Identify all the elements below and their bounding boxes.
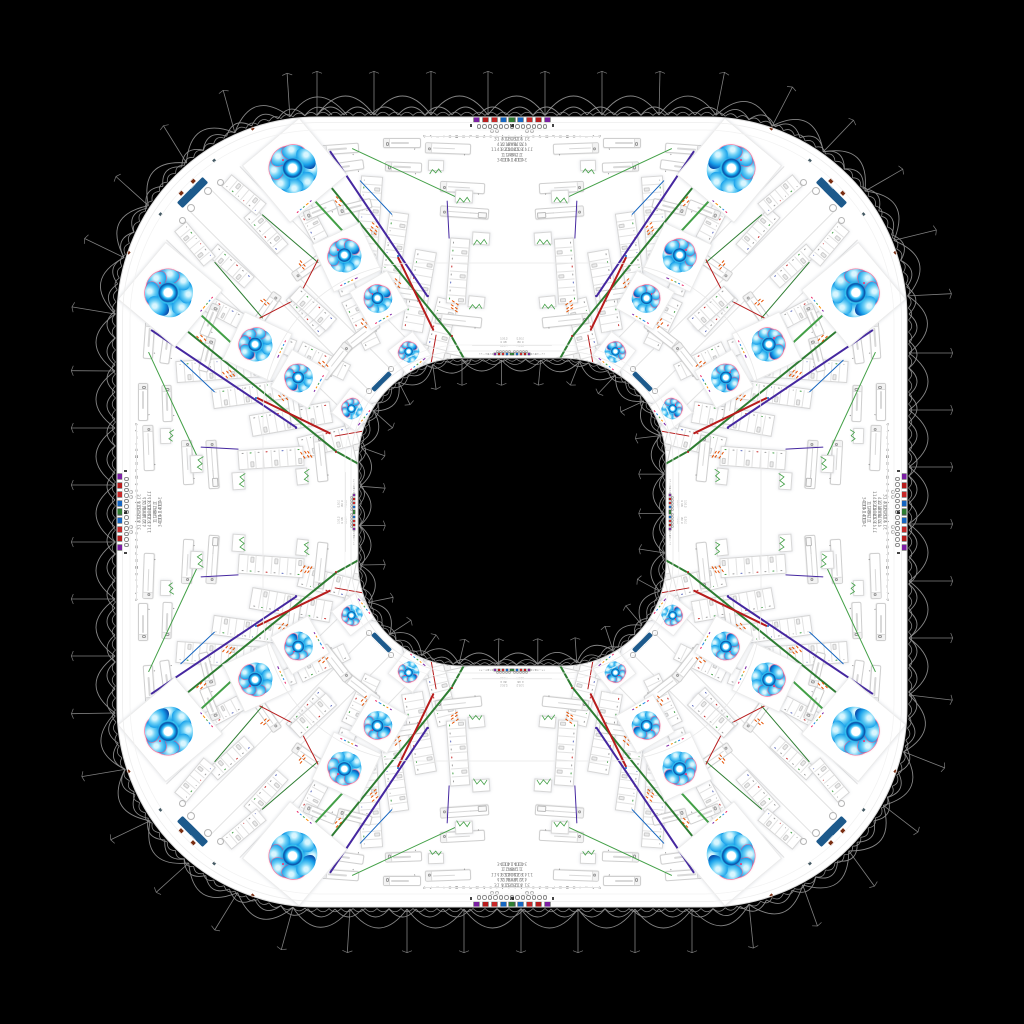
micro-text-span: ▾ — [694, 548, 697, 550]
row-status-dot-icon — [703, 716, 705, 718]
row-action-chip[interactable] — [770, 557, 774, 563]
micro-text-span: 4 1321 4 1748 8 11041 1 148 110 141 — [862, 497, 888, 523]
tick-mark — [654, 612, 656, 614]
row-status-dot-icon — [697, 667, 699, 669]
inner-pagination-dot — [671, 525, 674, 528]
ghost-circle — [652, 630, 657, 635]
micro-text: 4 1321 4 1748 8 11041 1 148 110 141 — [830, 466, 888, 524]
dot-row-center-icon — [897, 513, 900, 515]
app-icon[interactable] — [903, 537, 908, 542]
rim-mark-icon — [894, 770, 898, 774]
input-leading-icon — [877, 634, 885, 640]
row-status-dot-icon — [827, 785, 829, 787]
row-status-dot-icon — [778, 635, 780, 637]
input-text-value-2 — [810, 545, 812, 554]
micro-text-span: ▾ — [873, 609, 876, 610]
row-status-dot-icon — [774, 747, 776, 749]
row-status-dot-icon — [725, 574, 727, 576]
row-status-dot-icon — [806, 662, 808, 664]
input-text-value — [702, 558, 706, 581]
input-text-value — [810, 552, 813, 576]
ghost-circle — [829, 812, 837, 820]
tick-mark — [738, 682, 740, 684]
micro-text-span: ▾ — [849, 608, 852, 610]
micro-text-span: ↻✎▭⊞▦⇄▤≡ — [669, 528, 671, 545]
row-status-dot-icon — [843, 659, 845, 661]
inner-pagination-dot — [671, 519, 674, 522]
micro-text-span: ▾ — [851, 665, 854, 667]
micro-text-span: ▾ — [868, 670, 871, 672]
input-text-value — [874, 569, 876, 591]
row-status-dot-icon — [757, 572, 759, 574]
rim-mark-icon — [840, 828, 846, 834]
app-icon[interactable] — [903, 546, 908, 551]
magenta-speck — [675, 618, 677, 620]
tick-mark — [742, 675, 744, 677]
row-action-chip[interactable] — [796, 619, 801, 625]
pagination-dot[interactable] — [895, 532, 900, 537]
input-trailing-button[interactable] — [806, 537, 813, 546]
row-status-dot-icon — [711, 674, 713, 676]
sparkline-chart — [848, 581, 857, 595]
row-status-dot-icon — [756, 638, 758, 640]
micro-text-span: 31 312 412 4 1141 21 1 2 341 1 — [862, 514, 888, 554]
dot-row-end-icon — [898, 552, 901, 555]
sparkline-box — [821, 551, 835, 570]
tick-mark — [662, 602, 664, 604]
row-action-chip[interactable] — [832, 644, 836, 650]
row-status-dot-icon — [822, 779, 824, 781]
magnifier-icon — [746, 723, 751, 728]
list-panel — [687, 692, 736, 738]
micro-text-span: ▾ — [867, 559, 870, 561]
row-status-dot-icon — [790, 712, 792, 714]
tick-mark — [817, 719, 819, 721]
inner-pagination-dot — [671, 516, 674, 519]
tick-mark — [700, 646, 702, 648]
rim-mark-icon — [862, 808, 866, 812]
row-status-dot-icon — [717, 677, 719, 679]
input-leading-icon — [872, 592, 881, 598]
row-status-dot-icon — [836, 660, 838, 662]
connector-line — [887, 512, 888, 600]
magnifier-icon — [873, 593, 877, 597]
search-input[interactable]: ▾ — [869, 553, 882, 599]
row-action-chip[interactable] — [746, 559, 750, 565]
magnifier-icon — [834, 578, 838, 582]
row-status-dot-icon — [677, 657, 679, 659]
row-status-dot-icon — [800, 632, 802, 634]
input-text-value — [880, 615, 882, 633]
row-action-chip[interactable] — [683, 577, 688, 583]
center-hole — [358, 358, 666, 666]
row-action-chip[interactable] — [722, 560, 726, 566]
dropdown-caret-icon: ▾ — [685, 544, 704, 551]
primary-button-label: EXPORT — [823, 833, 835, 839]
sparkline-chart — [775, 535, 787, 552]
magenta-speck — [773, 685, 775, 687]
micro-text-span: ▾ — [828, 545, 831, 547]
input-leading-icon — [808, 577, 817, 584]
magnifier-icon — [806, 713, 811, 718]
row-status-dot-icon — [741, 573, 743, 575]
input-leading-icon — [743, 722, 754, 732]
tick-mark — [708, 632, 710, 634]
row-status-dot-icon — [704, 670, 706, 672]
row-status-dot-icon — [836, 796, 838, 798]
tick-mark — [743, 671, 745, 673]
row-status-dot-icon — [706, 617, 708, 619]
tick-mark — [822, 713, 824, 715]
input-text-value — [873, 677, 876, 696]
row-status-dot-icon — [813, 768, 815, 770]
ghost-circle — [839, 801, 846, 808]
magnifier-icon — [878, 635, 882, 639]
tick-mark — [702, 643, 704, 645]
row-status-dot-icon — [715, 726, 717, 728]
pagination-dot[interactable] — [895, 526, 900, 531]
row-status-dot-icon — [792, 633, 794, 635]
tick-mark — [664, 599, 666, 601]
row-status-dot-icon — [721, 732, 723, 734]
row-status-dot-icon — [798, 768, 800, 770]
sparkline-chart — [711, 540, 723, 556]
row-status-dot-icon — [697, 710, 699, 712]
row-status-dot-icon — [731, 681, 733, 683]
inner-pagination-dot — [671, 522, 674, 525]
connector-line — [679, 512, 680, 552]
row-status-dot-icon — [689, 592, 691, 594]
app-icon[interactable] — [903, 528, 908, 533]
row-status-dot-icon — [761, 607, 763, 609]
magnifier-icon — [811, 680, 816, 685]
tick-mark — [814, 722, 816, 724]
row-status-dot-icon — [817, 773, 819, 775]
dropdown-caret-icon: ▾ — [864, 605, 883, 610]
tick-mark — [819, 716, 821, 718]
row-status-dot-icon — [804, 774, 806, 776]
pagination-dot[interactable] — [895, 543, 900, 548]
list-panel — [719, 554, 786, 579]
search-input[interactable]: ▾ — [876, 603, 886, 641]
tick-mark — [656, 609, 658, 611]
row-status-dot-icon — [765, 571, 767, 573]
row-status-dot-icon — [692, 705, 694, 707]
input-text-value — [835, 554, 838, 576]
tick-mark — [811, 726, 813, 728]
row-status-dot-icon — [781, 570, 783, 572]
tick-mark — [704, 639, 706, 641]
inner-app-icon[interactable] — [669, 528, 671, 530]
row-status-dot-icon — [792, 763, 794, 765]
row-status-dot-icon — [753, 608, 755, 610]
magnifier-icon — [675, 673, 680, 678]
row-status-dot-icon — [784, 709, 786, 711]
sparkline-box — [778, 534, 792, 553]
pagination-dot[interactable] — [895, 521, 900, 526]
tick-mark — [706, 635, 708, 637]
row-status-dot-icon — [786, 758, 788, 760]
magenta-speck — [863, 740, 865, 742]
input-text-value — [856, 613, 858, 631]
sparkline-chart — [818, 552, 830, 569]
micro-text-span: ▾ — [811, 690, 815, 693]
primary-button[interactable]: ▸VIEW — [641, 633, 653, 645]
row-status-dot-icon — [828, 660, 830, 662]
pagination-dot[interactable] — [895, 515, 900, 520]
dropdown-caret-icon: ▾ — [819, 541, 838, 547]
kaleidoscope-screenshot: ↻ ✎ ▭ ▾ ⊞ ▦ ◫ ⇄ ▤ ◔ ≡ ▾ ✚ ⌂31 312 412 4 … — [0, 0, 1024, 1024]
row-status-dot-icon — [709, 721, 711, 723]
row-status-dot-icon — [713, 586, 715, 588]
row-status-dot-icon — [780, 752, 782, 754]
dropdown-caret-icon: ▾ — [858, 555, 877, 561]
row-status-dot-icon — [698, 618, 700, 620]
row-status-dot-icon — [733, 573, 735, 575]
tick-mark — [740, 678, 742, 680]
pagination-dot[interactable] — [895, 537, 900, 542]
row-status-dot-icon — [763, 637, 765, 639]
row-status-dot-icon — [721, 584, 723, 586]
row-status-dot-icon — [749, 572, 751, 574]
app-icon[interactable] — [903, 510, 908, 515]
row-status-dot-icon — [803, 719, 805, 721]
tick-mark — [659, 606, 661, 608]
row-status-dot-icon — [769, 605, 771, 607]
row-action-chip[interactable] — [756, 592, 761, 598]
sparkline-box — [715, 538, 729, 556]
row-status-dot-icon — [831, 790, 833, 792]
tick-mark — [745, 667, 747, 669]
sparkline-box — [853, 580, 865, 596]
row-status-dot-icon — [681, 593, 683, 595]
app-icon[interactable] — [903, 519, 908, 524]
inner-pagination-dot — [671, 513, 674, 516]
row-status-dot-icon — [773, 570, 775, 572]
input-leading-icon — [673, 671, 684, 681]
magnifier-icon — [810, 578, 814, 582]
row-status-dot-icon — [797, 716, 799, 718]
